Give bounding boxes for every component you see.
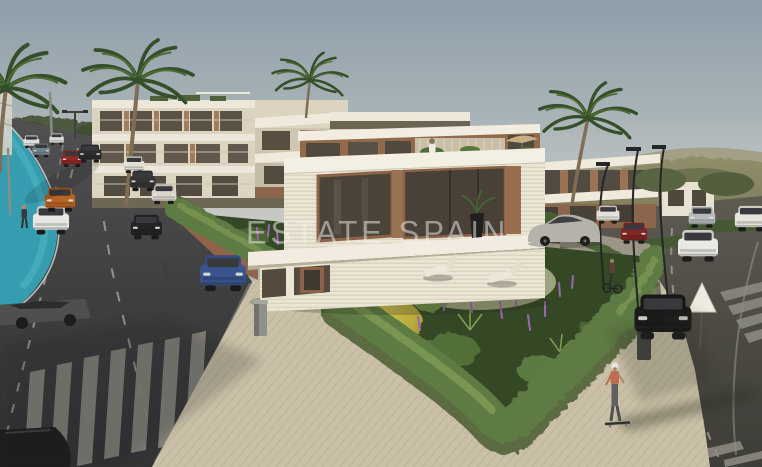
render-viewport: ESTATE SPAIN	[0, 0, 762, 467]
watermark: ESTATE SPAIN	[246, 214, 509, 251]
